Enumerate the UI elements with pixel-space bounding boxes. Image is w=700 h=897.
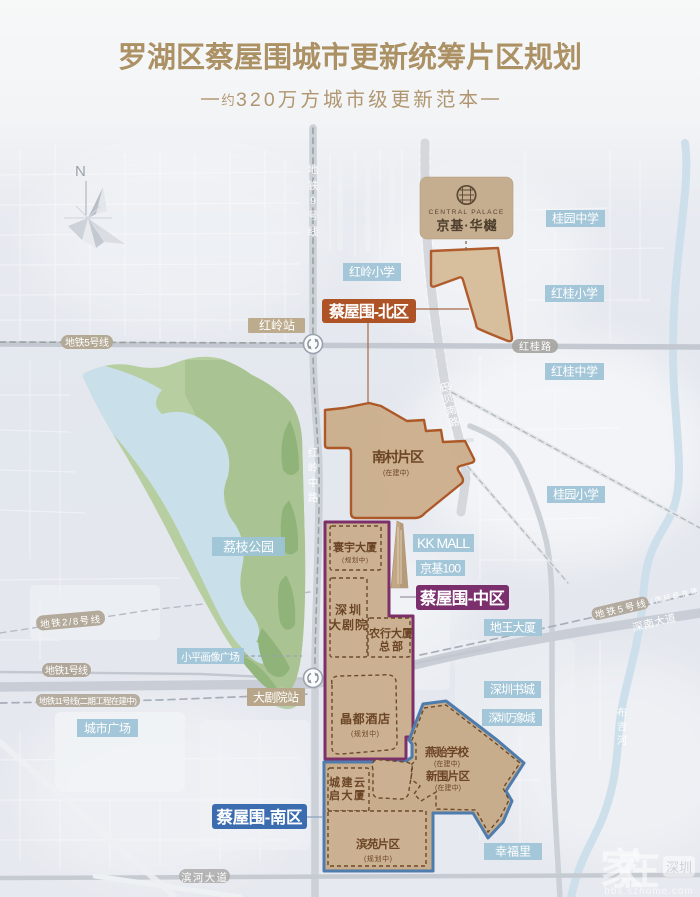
svg-text:蔡屋围-北区: 蔡屋围-北区: [328, 302, 409, 321]
svg-text:地铁5号线: 地铁5号线: [65, 336, 109, 349]
svg-text:寰宇大厦: 寰宇大厦: [332, 540, 378, 554]
svg-text:地王大厦: 地王大厦: [490, 621, 536, 635]
svg-text:320万方城市级更新范本: 320万方城市级更新范本: [236, 89, 478, 111]
svg-text:晶都酒店: 晶都酒店: [340, 711, 390, 726]
svg-text:京基·华樾: 京基·华樾: [437, 218, 498, 233]
svg-text:深圳: 深圳: [335, 602, 361, 617]
svg-text:(在建中): (在建中): [434, 759, 460, 768]
svg-text:深圳: 深圳: [666, 860, 692, 875]
svg-text:红桂中学: 红桂中学: [551, 364, 598, 379]
svg-text:滨苑片区: 滨苑片区: [356, 837, 401, 851]
svg-text:深圳万象城: 深圳万象城: [489, 712, 536, 725]
svg-text:农行大厦: 农行大厦: [368, 626, 414, 640]
svg-text:地铁1号线: 地铁1号线: [45, 664, 88, 677]
svg-text:地铁11号线(二期工程在建中): 地铁11号线(二期工程在建中): [39, 696, 137, 706]
svg-text:(规划中): (规划中): [351, 729, 379, 738]
svg-text:新围片区: 新围片区: [426, 769, 471, 783]
svg-text:京基100: 京基100: [420, 562, 461, 576]
svg-text:布吉河: 布吉河: [617, 707, 627, 747]
svg-text:罗湖区蔡屋围城市更新统筹片区规划: 罗湖区蔡屋围城市更新统筹片区规划: [118, 40, 582, 74]
svg-text:约: 约: [221, 93, 235, 108]
svg-text:(规划中): (规划中): [342, 555, 368, 564]
svg-text:深圳书城: 深圳书城: [490, 683, 535, 697]
svg-text:bbs.szhome.com: bbs.szhome.com: [604, 886, 694, 897]
svg-text:KK MALL: KK MALL: [417, 535, 470, 551]
svg-text:大剧院站: 大剧院站: [253, 691, 299, 705]
svg-text:燕贻学校: 燕贻学校: [425, 745, 470, 759]
svg-text:蔡屋围-南区: 蔡屋围-南区: [216, 807, 304, 827]
svg-text:城建云: 城建云: [329, 775, 365, 789]
svg-text:N: N: [75, 163, 86, 180]
svg-text:大剧院: 大剧院: [329, 617, 367, 632]
svg-text:滨河大道: 滨河大道: [181, 871, 228, 884]
svg-text:桂园中学: 桂园中学: [552, 211, 599, 226]
svg-text:小平画像广场: 小平画像广场: [181, 651, 240, 664]
svg-text:CENTRAL PALACE: CENTRAL PALACE: [429, 209, 505, 216]
svg-text:幸福里: 幸福里: [495, 844, 531, 859]
svg-text:(规划中): (规划中): [364, 854, 392, 863]
svg-text:红桂小学: 红桂小学: [551, 286, 598, 301]
svg-text:南村片区: 南村片区: [372, 449, 424, 465]
svg-text:荔枝公园: 荔枝公园: [223, 540, 274, 555]
svg-text:城市广场: 城市广场: [84, 721, 131, 736]
svg-text:红岭小学: 红岭小学: [349, 264, 395, 279]
svg-text:蔡屋围-中区: 蔡屋围-中区: [419, 588, 506, 608]
svg-text:桂园小学: 桂园小学: [553, 487, 599, 502]
svg-text:红桂路: 红桂路: [519, 340, 551, 353]
svg-text:红岭站: 红岭站: [259, 318, 295, 333]
svg-text:(在建中): (在建中): [383, 468, 409, 477]
svg-text:(在建中): (在建中): [435, 783, 461, 792]
svg-text:启大厦: 启大厦: [329, 788, 366, 802]
